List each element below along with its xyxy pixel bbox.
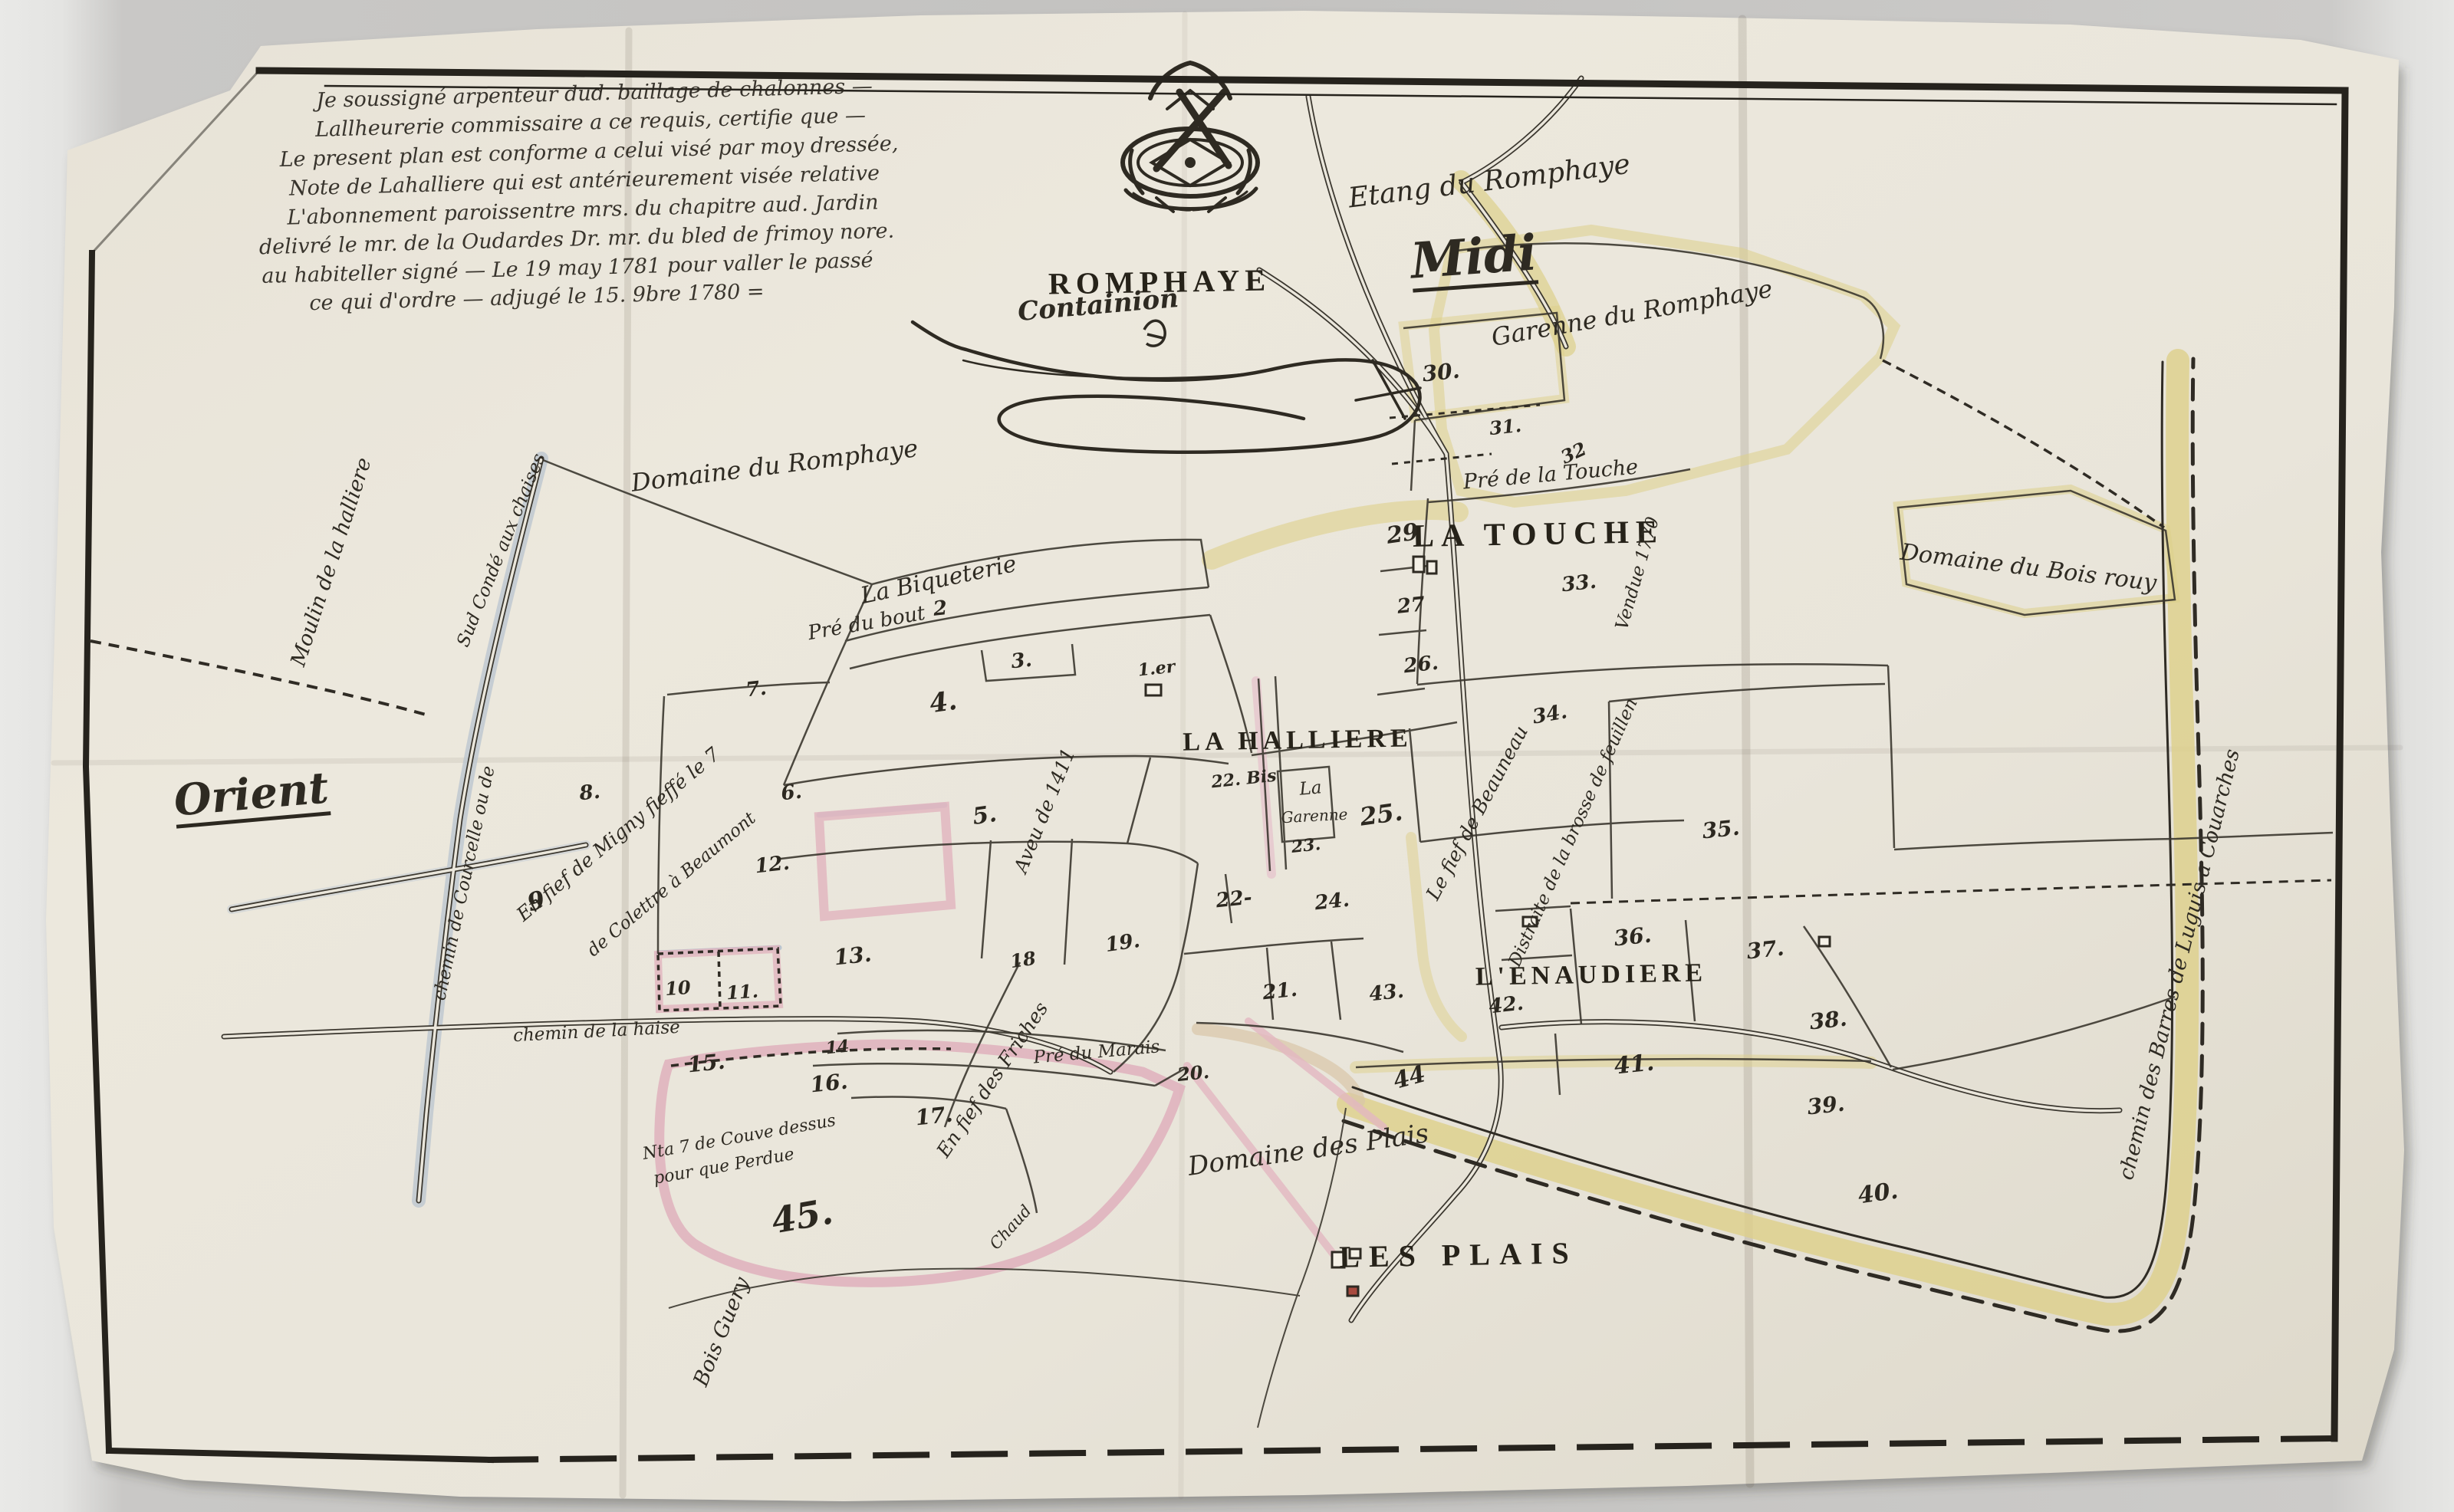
parcel-3: 3. [1010,650,1033,672]
title-la-halliere: LA HALLIERE [1183,725,1413,755]
label-domaine-du-romphaye: Domaine du Romphaye [630,436,919,495]
parcel-36: 36. [1613,925,1652,950]
parcel-29: 29 [1385,521,1420,548]
label-domaine-des-plais: Domaine des Plais [1186,1120,1430,1180]
parcel-20: 20. [1176,1063,1210,1084]
title-romphaye: ROMPHAYE [1048,265,1271,299]
parcel-15: 15. [686,1051,725,1076]
parcel-4: 4. [928,688,959,718]
parcel-31: 31. [1489,416,1522,438]
parcel-11: 11. [725,982,758,1003]
parcel-18: 18 [1009,949,1037,971]
label-bois-guery: Bois Guery [690,1274,752,1389]
parcel-8: 8. [578,782,601,804]
parcel-45: 45. [769,1193,836,1238]
parcel-5: 5. [971,803,998,829]
parcel-41: 41. [1613,1051,1655,1078]
label-pre-du-marais: Pré du Marais [1033,1038,1161,1067]
road-chemin-de-courcelle: chemin de Courcelle ou de [431,764,498,1002]
label-domaine-du-bois-rouy: Domaine du Bois rouy [1899,541,2157,596]
parcel-1er: 1.er [1137,659,1176,679]
parcel-14: 14 [825,1037,850,1057]
label-etang-du-romphaye: Etang du Romphaye [1347,151,1631,213]
parcel-10: 10 [665,978,692,998]
parcel-19: 19. [1104,931,1141,955]
cert-line-8: ce qui d'ordre — adjugé le 15. 9bre 1780… [309,281,765,314]
parcel-6: 6. [780,782,803,804]
parcel-35: 35. [1701,817,1740,843]
compass-south: Midi [1410,228,1539,292]
road-chemin-de-la-haise: chemin de la haise [513,1019,681,1045]
road-sud-conde-aux-chaises: Sud Condé aux chaises [455,452,548,649]
parcel-34: 34. [1531,702,1568,727]
title-les-plais: LES PLAIS [1339,1238,1578,1272]
parcel-22bis: 22. Bis [1210,768,1277,791]
parcel-12: 12. [754,853,791,877]
parcel-16: 16. [809,1071,848,1096]
parcel-24: 24. [1314,890,1350,914]
label-la-garenne-2: Garenne [1281,807,1348,826]
label-aveu-de-1411: Aveu de 1411 [1011,745,1078,875]
parcel-38: 38. [1808,1008,1847,1034]
parcel-40: 40. [1857,1180,1900,1208]
label-garenne-du-romphaye: Garenne du Romphaye [1489,276,1774,350]
title-la-touche: LA TOUCHE [1413,516,1665,553]
parcel-44: 44 [1391,1063,1428,1093]
label-pre-de-la-touche: Pré de la Touche [1462,457,1639,493]
label-pre-du-bout: Pré du bout [807,603,927,643]
parcel-23: 23. [1291,836,1321,856]
parcel-37: 37. [1745,938,1785,963]
compass-east: Orient [173,766,331,828]
parcel-25: 25. [1358,799,1404,829]
parcel-42: 42. [1488,994,1525,1017]
parcel-17: 17. [914,1104,953,1129]
road-chemin-des-barres: chemin des Barres de Luguis a Couarches [2116,747,2243,1182]
parcel-7: 7. [745,679,768,701]
label-fief-de-beauneau: Le fief de Beauneau [1423,723,1531,903]
parcel-26: 26. [1403,653,1439,677]
parcel-43: 43. [1368,981,1405,1005]
label-chaud: Chaud [987,1202,1035,1252]
parcel-22: 22- [1215,888,1252,912]
parcel-33: 33. [1561,572,1597,596]
parcel-13: 13. [833,944,872,969]
label-fief-de-migny: En fief de Migny fieffé le 7 [513,744,723,924]
title-l-enaudiere: L'ENAUDIERE [1475,960,1708,990]
parcel-30: 30. [1421,360,1460,386]
parcel-39: 39. [1806,1093,1845,1119]
parcel-27: 27 [1396,594,1426,617]
label-fief-des-friches: En fief des Friches [933,999,1051,1161]
map-labels: Je soussigné arpenteur dud. baillage de … [0,0,2454,1512]
parcel-2: 2 [933,598,949,620]
parcel-21: 21. [1262,980,1298,1004]
photo-backdrop: Je soussigné arpenteur dud. baillage de … [0,0,2454,1512]
label-moulin-de-la-halliere: Moulin de la halliere [288,455,374,669]
label-la-garenne-1: La [1299,779,1323,798]
